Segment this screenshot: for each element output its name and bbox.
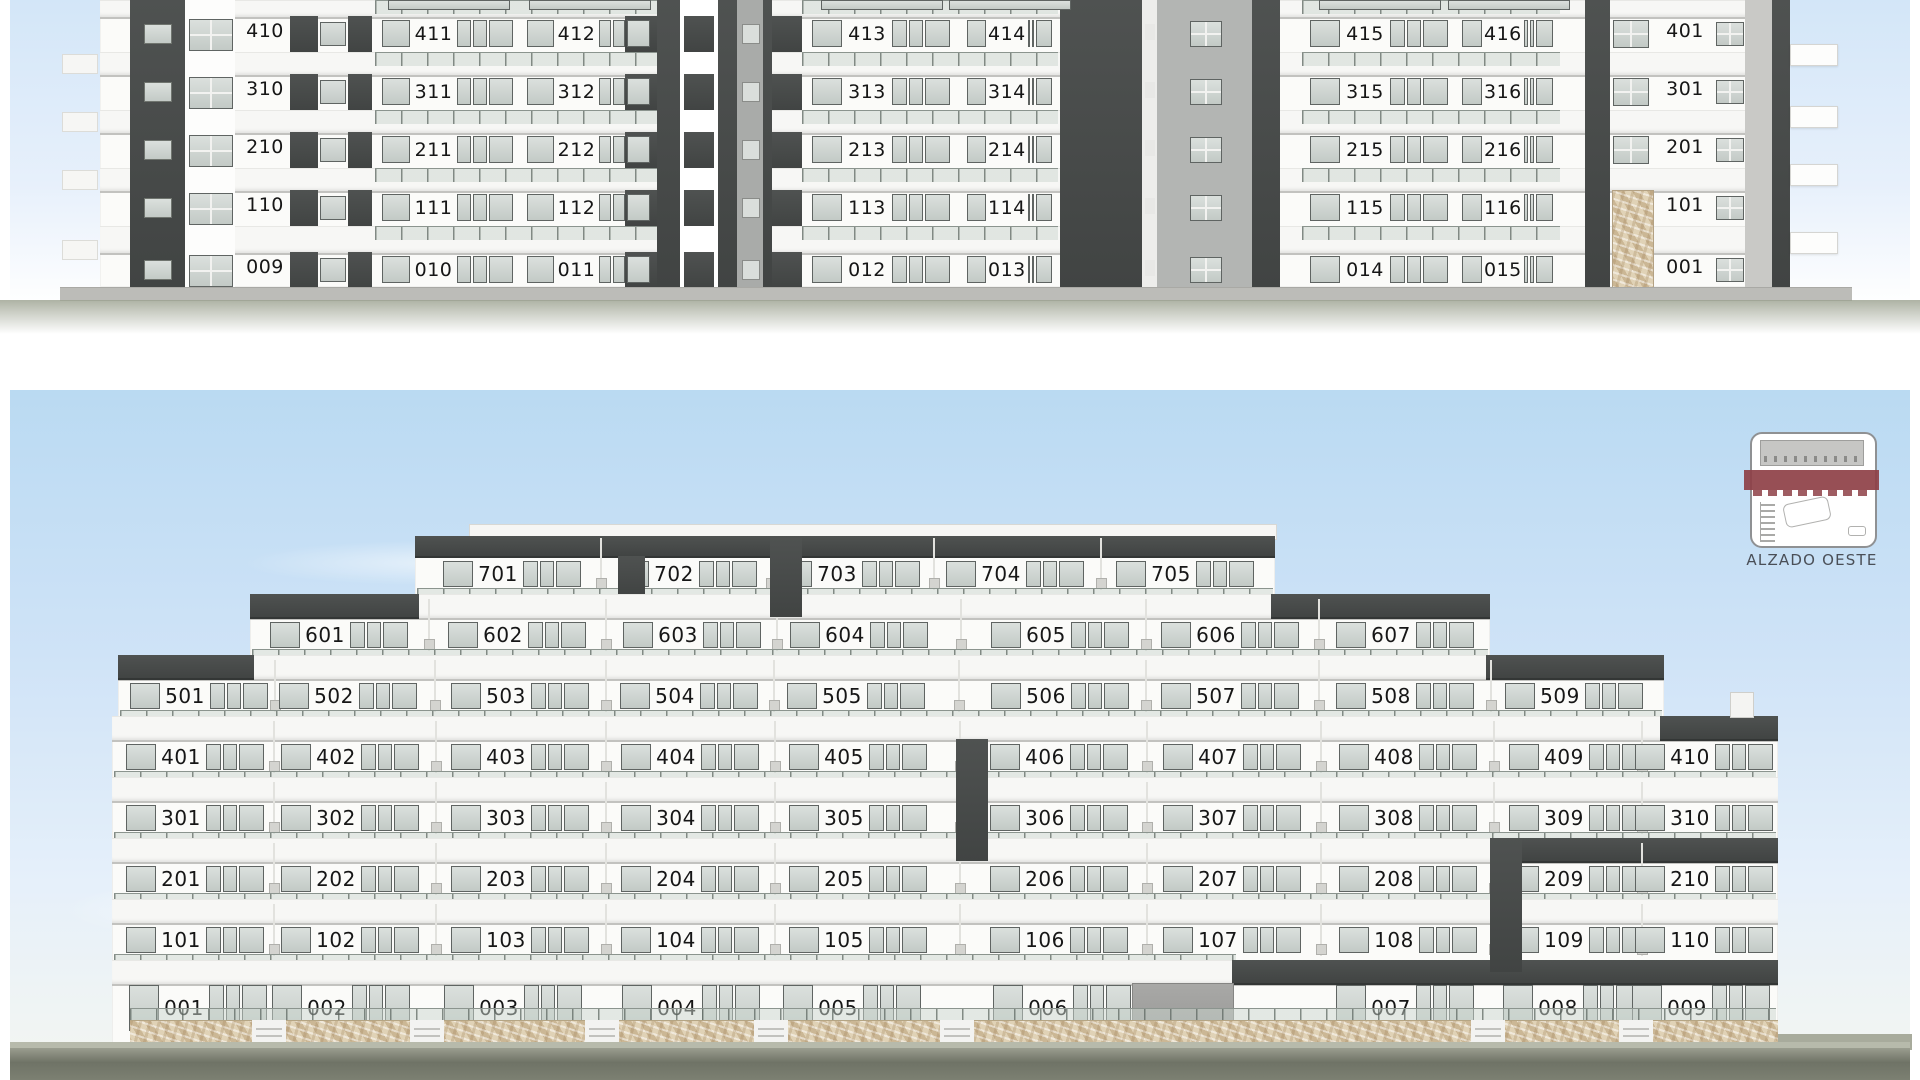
- window-pane: [1423, 20, 1448, 47]
- window-pane: [1407, 78, 1422, 105]
- window-assembly: 205: [789, 866, 927, 892]
- facade-pier: [348, 190, 372, 226]
- window-pane: [1423, 136, 1448, 163]
- window-pane: [812, 78, 842, 105]
- core-window: [1145, 140, 1155, 156]
- unit-label: 211: [412, 136, 455, 163]
- west-elevation-panel: 7017027037047056016026036046056066075015…: [0, 340, 1920, 1080]
- window-assembly: 601: [270, 622, 408, 648]
- pier-window: [144, 198, 172, 218]
- window-assembly: 104: [621, 927, 759, 953]
- window-pane: [1748, 927, 1773, 953]
- window-pane: [720, 622, 735, 648]
- window-pane: [1104, 622, 1129, 648]
- window-assembly: 105: [789, 927, 927, 953]
- unit-label: 301: [158, 805, 204, 831]
- unit-label: 409: [1541, 744, 1587, 770]
- unit-label: 601: [302, 622, 348, 648]
- window-pane: [1530, 20, 1534, 47]
- mullion: [1191, 33, 1221, 35]
- window-pane: [223, 866, 238, 892]
- unit-label: 215: [1342, 136, 1388, 163]
- window-pane: [1635, 866, 1665, 892]
- unit-label: 410: [220, 20, 310, 42]
- unit-label: 504: [652, 683, 698, 709]
- window-assembly: 201: [126, 866, 264, 892]
- step-line: [589, 1035, 615, 1037]
- window-pane: [382, 136, 410, 163]
- unit-label: 413: [844, 20, 890, 47]
- window-pane: [1260, 744, 1275, 770]
- window-pane: [879, 561, 894, 587]
- small-window: [320, 258, 346, 282]
- window-pane: [378, 927, 393, 953]
- window-pane: [1635, 744, 1665, 770]
- unit-label: 503: [483, 683, 529, 709]
- window-pane: [1163, 744, 1193, 770]
- window-pane: [548, 683, 563, 709]
- unit-label: 216: [1484, 136, 1522, 163]
- window-assembly: 304: [621, 805, 759, 831]
- keymap-plan-shape: [1782, 495, 1832, 528]
- window-pane: [527, 194, 554, 221]
- window-pane: [1524, 136, 1528, 163]
- pier-column: [1772, 0, 1790, 287]
- drawing-sheet: 4104114124134144154164013103113123133143…: [0, 0, 1920, 1080]
- unit-label: 412: [556, 20, 597, 47]
- window-pane: [613, 136, 625, 163]
- window-assembly: 308: [1339, 805, 1477, 831]
- window-pane: [1243, 866, 1258, 892]
- window-pane: [1505, 683, 1535, 709]
- unit-label: 315: [1342, 78, 1388, 105]
- window-assembly: 202: [281, 866, 419, 892]
- window-pane: [451, 683, 481, 709]
- step-line: [944, 1035, 970, 1037]
- window-pane: [812, 256, 842, 283]
- window-pane: [528, 622, 543, 648]
- window-assembly: 111: [382, 194, 513, 221]
- window-pane: [718, 927, 733, 953]
- window-pane: [1104, 683, 1129, 709]
- unit-label: 012: [844, 256, 890, 283]
- unit-label: 306: [1022, 805, 1068, 831]
- facade-pier: [772, 132, 802, 168]
- terrain-wash: [0, 300, 1920, 334]
- window-pane: [1589, 927, 1604, 953]
- window-pane: [1732, 805, 1747, 831]
- window-assembly: 306: [990, 805, 1128, 831]
- unit-label: 105: [821, 927, 867, 953]
- unit-label: 009: [220, 256, 310, 278]
- window-pane: [1416, 683, 1431, 709]
- window-pane: [1258, 683, 1273, 709]
- window-pane: [1436, 744, 1451, 770]
- window-pane: [1589, 805, 1604, 831]
- window-pane: [457, 136, 471, 163]
- window-pane: [627, 78, 650, 105]
- window-pane: [627, 136, 650, 163]
- window-pane: [925, 78, 950, 105]
- window-pane: [1452, 744, 1477, 770]
- window-pane: [1071, 622, 1086, 648]
- window-pane: [902, 866, 927, 892]
- dark-joint: [770, 538, 802, 617]
- window-pane: [279, 683, 309, 709]
- window-pane: [548, 805, 563, 831]
- window-pane: [734, 744, 759, 770]
- window-pane: [789, 805, 819, 831]
- window-pane: [1103, 805, 1128, 831]
- facade-pier: [772, 190, 802, 226]
- window-pane: [718, 805, 733, 831]
- slab-tab: [62, 54, 98, 74]
- window-pane: [812, 136, 842, 163]
- core-window: [1145, 198, 1155, 214]
- window-pane: [1452, 927, 1477, 953]
- unit-label: 304: [653, 805, 699, 831]
- facade-pier: [772, 252, 802, 287]
- parapet-band: [1486, 655, 1664, 680]
- unit-label: 501: [162, 683, 208, 709]
- core-window: [1145, 82, 1155, 98]
- window-pane: [892, 78, 907, 105]
- window-pane: [884, 683, 899, 709]
- window-assembly: 115: [1310, 194, 1448, 221]
- window-assembly: 108: [1339, 927, 1477, 953]
- window-assembly: 506: [991, 683, 1129, 709]
- window-pane: [564, 927, 589, 953]
- unit-label: 015: [1484, 256, 1522, 283]
- window-pane: [394, 866, 419, 892]
- window-pane: [1423, 194, 1448, 221]
- window-pane: [1026, 561, 1041, 587]
- step-line: [1623, 1028, 1649, 1030]
- window-pane: [451, 927, 481, 953]
- window-pane: [1536, 78, 1553, 105]
- unit-label: 407: [1195, 744, 1241, 770]
- window-pane: [1103, 866, 1128, 892]
- window-pane: [1715, 866, 1730, 892]
- unit-label: 406: [1022, 744, 1068, 770]
- window-pane: [451, 866, 481, 892]
- unit-label: 011: [556, 256, 597, 283]
- window-pane: [392, 683, 417, 709]
- mullion: [1191, 207, 1221, 209]
- window-pane: [1310, 194, 1340, 221]
- window-assembly: 110: [1635, 927, 1773, 953]
- unit-label: 205: [821, 866, 867, 892]
- window-pane: [1748, 866, 1773, 892]
- window-pane: [394, 805, 419, 831]
- unit-label: 108: [1371, 927, 1417, 953]
- window-assembly: 704: [946, 561, 1084, 587]
- window-assembly: 307: [1163, 805, 1301, 831]
- window-top-hint: [821, 0, 943, 10]
- window-assembly: 409: [1509, 744, 1647, 770]
- window-pane: [1635, 805, 1665, 831]
- window-pane: [378, 866, 393, 892]
- window-pane: [531, 744, 546, 770]
- window-pane: [1116, 561, 1146, 587]
- unit-label: 201: [1640, 136, 1730, 158]
- window-pane: [556, 561, 581, 587]
- unit-label: 508: [1368, 683, 1414, 709]
- window-pane: [1070, 927, 1085, 953]
- window-pane: [281, 866, 311, 892]
- pier-column: [657, 0, 680, 287]
- window-pane: [1452, 805, 1477, 831]
- window-assembly: 605: [991, 622, 1129, 648]
- window-pane: [1449, 683, 1474, 709]
- parapet-band: [415, 536, 1275, 558]
- window-pane: [869, 805, 884, 831]
- window-pane: [869, 744, 884, 770]
- window-pane: [886, 805, 901, 831]
- stair-window: [1190, 257, 1222, 283]
- window-pane: [239, 927, 264, 953]
- window-pane: [1436, 805, 1451, 831]
- window-pane: [126, 866, 156, 892]
- window-pane: [1088, 683, 1103, 709]
- window-assembly: 503: [451, 683, 589, 709]
- unit-label: 112: [556, 194, 597, 221]
- pier-window: [144, 260, 172, 280]
- window-pane: [967, 256, 986, 283]
- window-pane: [869, 927, 884, 953]
- unit-label: 308: [1371, 805, 1417, 831]
- pier-column: [763, 0, 772, 287]
- facade-pier: [348, 74, 372, 110]
- window-pane: [991, 622, 1021, 648]
- window-assembly: 301: [126, 805, 264, 831]
- window-pane: [206, 866, 221, 892]
- unit-label: 210: [220, 136, 310, 158]
- window-top-hint: [949, 0, 1071, 10]
- window-pane: [227, 683, 242, 709]
- window-pane: [613, 78, 625, 105]
- unit-label: 103: [483, 927, 529, 953]
- window-pane: [1390, 78, 1405, 105]
- step-line: [1623, 1035, 1649, 1037]
- window-pane: [789, 927, 819, 953]
- window-pane: [1070, 805, 1085, 831]
- unit-label: 109: [1541, 927, 1587, 953]
- window-pane: [1462, 256, 1482, 283]
- checker-block: [684, 252, 714, 287]
- unit-label: 702: [651, 561, 697, 587]
- window-pane: [126, 927, 156, 953]
- dark-joint: [618, 556, 645, 594]
- window-pane: [451, 805, 481, 831]
- window-pane: [1161, 683, 1191, 709]
- window-pane: [900, 683, 925, 709]
- window-assembly: 015: [1462, 256, 1553, 283]
- window-assembly: 602: [448, 622, 586, 648]
- window-pane: [448, 622, 478, 648]
- window-pane: [527, 136, 554, 163]
- pier-window: [144, 24, 172, 44]
- unit-label: 101: [158, 927, 204, 953]
- window-pane: [473, 256, 487, 283]
- unit-label: 415: [1342, 20, 1388, 47]
- window-pane: [1452, 866, 1477, 892]
- stair-window: [1190, 21, 1222, 47]
- window-pane: [527, 256, 554, 283]
- window-pane: [126, 805, 156, 831]
- window-pane: [1524, 20, 1528, 47]
- window-pane: [1536, 136, 1553, 163]
- core-window: [742, 82, 760, 102]
- unit-label: 509: [1537, 683, 1583, 709]
- chimney: [1730, 692, 1754, 718]
- unit-label: 206: [1022, 866, 1068, 892]
- unit-label: 107: [1195, 927, 1241, 953]
- window-pane: [862, 561, 877, 587]
- top-elevation-panel: 4104114124134144154164013103113123133143…: [0, 0, 1920, 340]
- window-pane: [1715, 744, 1730, 770]
- window-pane: [1530, 136, 1534, 163]
- window-pane: [1310, 256, 1340, 283]
- window-pane: [1419, 805, 1434, 831]
- window-pane: [789, 866, 819, 892]
- facade-pier: [772, 16, 802, 52]
- window-pane: [1036, 194, 1052, 221]
- window-assembly: 312: [527, 78, 650, 105]
- window-pane: [1059, 561, 1084, 587]
- window-pane: [1276, 866, 1301, 892]
- window-pane: [925, 256, 950, 283]
- window-pane: [599, 194, 611, 221]
- window-pane: [991, 683, 1021, 709]
- unit-label: 401: [1640, 20, 1730, 42]
- window-pane: [1536, 20, 1553, 47]
- dark-joint: [956, 739, 988, 861]
- window-pane: [1419, 927, 1434, 953]
- window-pane: [1423, 256, 1448, 283]
- unit-label: 507: [1193, 683, 1239, 709]
- window-pane: [1087, 927, 1102, 953]
- window-assembly: 011: [527, 256, 650, 283]
- balcony-rail: [802, 110, 1058, 124]
- window-pane: [523, 561, 538, 587]
- window-assembly: 405: [789, 744, 927, 770]
- window-assembly: 303: [451, 805, 589, 831]
- window-pane: [1390, 20, 1405, 47]
- window-assembly: 507: [1161, 683, 1299, 709]
- keymap-crenellation: [1753, 490, 1870, 496]
- window-pane: [1241, 683, 1256, 709]
- window-pane: [990, 927, 1020, 953]
- step-line: [758, 1028, 784, 1030]
- window-assembly: 107: [1163, 927, 1301, 953]
- unit-label: 605: [1023, 622, 1069, 648]
- window-assembly: 412: [527, 20, 650, 47]
- window-assembly: 113: [812, 194, 950, 221]
- window-pane: [1732, 866, 1747, 892]
- window-pane: [1407, 136, 1422, 163]
- window-pane: [599, 256, 611, 283]
- small-window: [320, 196, 346, 220]
- unit-label: 402: [313, 744, 359, 770]
- unit-label: 602: [480, 622, 526, 648]
- pier-column: [1745, 0, 1772, 287]
- window-pane: [223, 744, 238, 770]
- window-pane: [1028, 136, 1030, 163]
- facade-pier: [348, 252, 372, 287]
- window-pane: [126, 744, 156, 770]
- window-pane: [1462, 136, 1482, 163]
- window-pane: [1419, 744, 1434, 770]
- window-assembly: 214: [967, 136, 1051, 163]
- window-pane: [627, 194, 650, 221]
- ac-unit: [1790, 44, 1838, 66]
- window-pane: [599, 20, 611, 47]
- window-pane: [1243, 805, 1258, 831]
- window-assembly: 313: [812, 78, 950, 105]
- window-pane: [1260, 866, 1275, 892]
- checker-block: [684, 132, 714, 168]
- window-pane: [206, 744, 221, 770]
- small-window: [320, 22, 346, 46]
- window-pane: [627, 256, 650, 283]
- vent-mark: [1316, 944, 1327, 955]
- window-pane: [548, 927, 563, 953]
- window-pane: [1436, 927, 1451, 953]
- parapet-band: [1271, 594, 1490, 619]
- slab: [118, 655, 1664, 681]
- window-pane: [457, 78, 471, 105]
- window-pane: [489, 256, 513, 283]
- window-assembly: 116: [1462, 194, 1553, 221]
- window-pane: [1462, 78, 1482, 105]
- window-pane: [489, 194, 513, 221]
- window-pane: [1036, 78, 1052, 105]
- small-window: [320, 80, 346, 104]
- window-pane: [1241, 622, 1256, 648]
- slab-tab: [62, 240, 98, 260]
- window-pane: [1732, 744, 1747, 770]
- window-pane: [1606, 744, 1621, 770]
- window-pane: [1715, 805, 1730, 831]
- window-pane: [1635, 927, 1665, 953]
- unit-label: 305: [821, 805, 867, 831]
- window-pane: [1229, 561, 1254, 587]
- window-pane: [703, 622, 718, 648]
- window-pane: [361, 805, 376, 831]
- window-pane: [1260, 805, 1275, 831]
- window-pane: [789, 744, 819, 770]
- balcony-rail: [375, 110, 657, 124]
- unit-label: 603: [655, 622, 701, 648]
- window-pane: [376, 683, 391, 709]
- window-pane: [892, 20, 907, 47]
- window-pane: [1028, 194, 1030, 221]
- window-pane: [733, 683, 758, 709]
- keymap-ticks: [1764, 456, 1860, 462]
- window-assembly: 013: [967, 256, 1051, 283]
- window-pane: [561, 622, 586, 648]
- mullion: [1191, 91, 1221, 93]
- window-assembly: 302: [281, 805, 419, 831]
- window-pane: [903, 622, 928, 648]
- slab: [112, 899, 1778, 925]
- window-pane: [361, 866, 376, 892]
- unit-label: 212: [556, 136, 597, 163]
- window-pane: [564, 866, 589, 892]
- window-pane: [909, 78, 924, 105]
- window-pane: [613, 194, 625, 221]
